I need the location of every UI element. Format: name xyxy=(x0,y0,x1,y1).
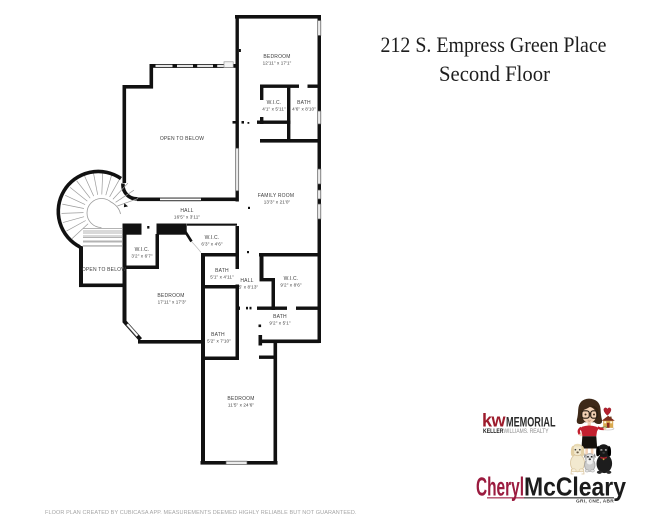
svg-text:16'5" x 3'11": 16'5" x 3'11" xyxy=(174,215,200,220)
svg-text:9'2" x 5'1": 9'2" x 5'1" xyxy=(269,321,290,326)
svg-text:13'3" x 21'0": 13'3" x 21'0" xyxy=(264,200,291,205)
svg-text:McCleary: McCleary xyxy=(524,472,626,502)
svg-text:W.I.C.: W.I.C. xyxy=(284,276,299,282)
svg-text:HALL: HALL xyxy=(180,208,193,214)
svg-text:BEDROOM: BEDROOM xyxy=(263,54,290,60)
svg-text:BATH: BATH xyxy=(297,100,311,106)
svg-text:BEDROOM: BEDROOM xyxy=(227,396,254,402)
svg-text:BATH: BATH xyxy=(211,332,225,338)
svg-text:9'2" x 8'6": 9'2" x 8'6" xyxy=(280,283,301,288)
svg-text:W.I.C.: W.I.C. xyxy=(135,247,150,253)
svg-text:GRI, CNE, ABR: GRI, CNE, ABR xyxy=(576,499,614,505)
svg-text:5' x 8'13": 5' x 8'13" xyxy=(239,285,259,290)
svg-text:FLOOR PLAN CREATED BY CUBICASA: FLOOR PLAN CREATED BY CUBICASA APP. MEAS… xyxy=(45,510,357,516)
svg-text:OPEN TO BELOW: OPEN TO BELOW xyxy=(160,136,204,142)
svg-text:KELLER: KELLER xyxy=(483,428,504,435)
svg-text:WILLIAMS. REALTY: WILLIAMS. REALTY xyxy=(504,428,549,435)
svg-text:W.I.C.: W.I.C. xyxy=(267,100,282,106)
svg-text:5'2" x 7'10": 5'2" x 7'10" xyxy=(207,339,231,344)
svg-text:HALL: HALL xyxy=(240,278,253,284)
svg-text:3'2" x 6'7": 3'2" x 6'7" xyxy=(131,254,152,259)
svg-text:5'1" x 4'11": 5'1" x 4'11" xyxy=(210,275,234,280)
svg-text:Cheryl: Cheryl xyxy=(476,472,524,502)
svg-text:4'6" x 8'10": 4'6" x 8'10" xyxy=(292,107,316,112)
svg-text:BATH: BATH xyxy=(273,314,287,320)
svg-text:Second Floor: Second Floor xyxy=(439,61,551,86)
svg-text:17'11" x 17'3": 17'11" x 17'3" xyxy=(158,300,187,305)
svg-text:OPEN TO BELOW: OPEN TO BELOW xyxy=(82,267,126,273)
svg-text:11'5" x 24'6": 11'5" x 24'6" xyxy=(228,403,254,408)
svg-text:W.I.C.: W.I.C. xyxy=(205,235,220,241)
svg-text:212 S. Empress Green Place: 212 S. Empress Green Place xyxy=(381,32,607,57)
svg-text:FAMILY ROOM: FAMILY ROOM xyxy=(258,193,294,199)
svg-text:6'3" x 4'6": 6'3" x 4'6" xyxy=(201,242,222,247)
svg-text:BEDROOM: BEDROOM xyxy=(157,293,184,299)
svg-text:BATH: BATH xyxy=(215,268,229,274)
svg-text:4'1" x 5'11": 4'1" x 5'11" xyxy=(262,107,286,112)
svg-text:12'11" x 17'1": 12'11" x 17'1" xyxy=(263,61,292,66)
